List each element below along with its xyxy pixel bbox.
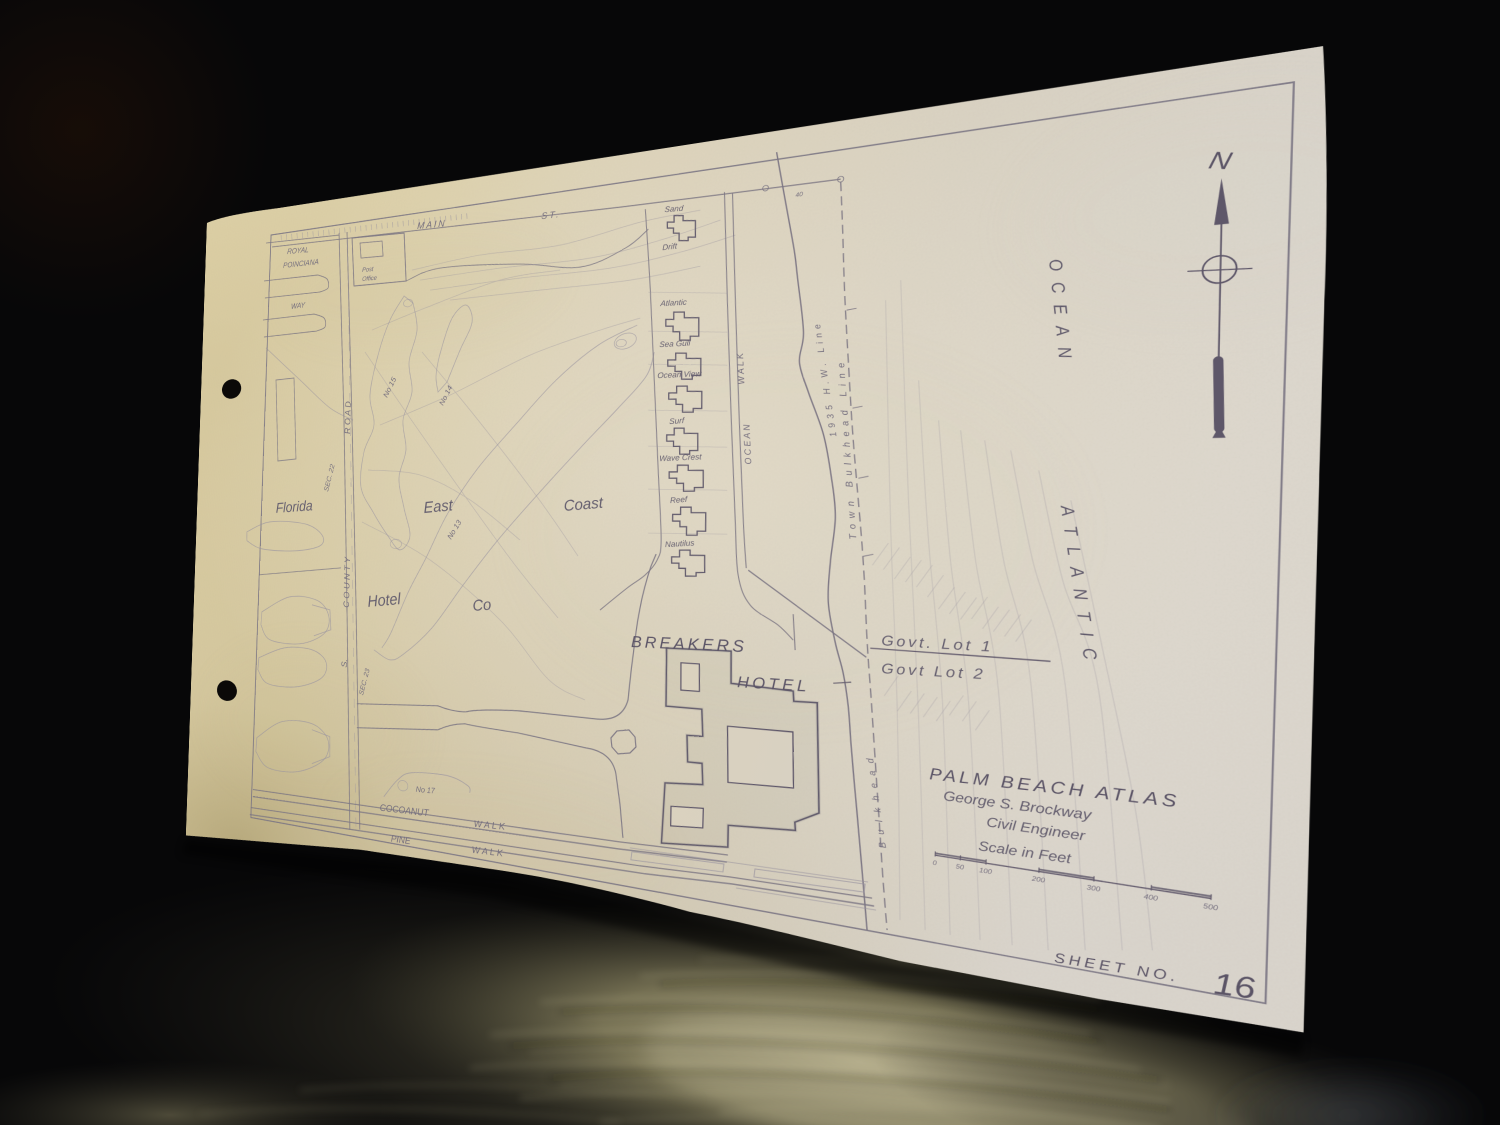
svg-text:Reef: Reef	[670, 496, 690, 506]
svg-text:East: East	[423, 496, 453, 517]
svg-text:Co: Co	[472, 595, 492, 615]
svg-text:S.: S.	[339, 659, 349, 668]
svg-text:40: 40	[795, 190, 804, 199]
svg-text:Drift: Drift	[662, 243, 678, 253]
svg-text:C O U N T Y: C O U N T Y	[341, 556, 352, 608]
svg-text:Office: Office	[362, 275, 377, 284]
svg-text:Wave Crest: Wave Crest	[659, 453, 702, 464]
svg-text:Surf: Surf	[669, 417, 686, 427]
svg-text:Atlantic: Atlantic	[659, 299, 688, 309]
svg-text:Post: Post	[362, 266, 374, 275]
svg-text:16: 16	[1213, 966, 1257, 1006]
svg-text:Sea Gull: Sea Gull	[659, 340, 691, 350]
svg-text:O C E A N: O C E A N	[743, 423, 754, 465]
svg-text:Sand: Sand	[664, 205, 685, 215]
svg-text:No 17: No 17	[416, 785, 436, 796]
svg-text:Nautilus: Nautilus	[665, 540, 695, 550]
svg-text:Hotel: Hotel	[367, 589, 403, 611]
svg-text:WAY: WAY	[291, 301, 306, 311]
svg-text:R O A D: R O A D	[342, 400, 352, 434]
svg-text:W A L K: W A L K	[737, 351, 748, 385]
svg-text:Florida: Florida	[276, 497, 313, 517]
svg-text:Coast: Coast	[563, 495, 604, 515]
